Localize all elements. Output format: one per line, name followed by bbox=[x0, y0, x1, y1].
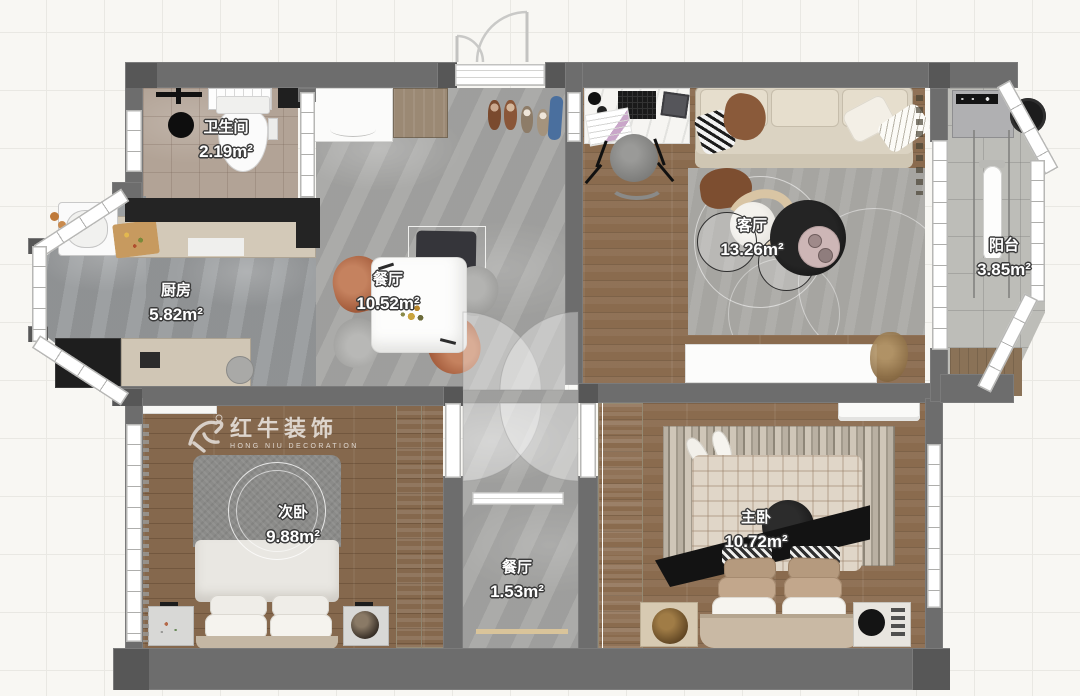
curtain bbox=[142, 424, 149, 642]
wall bbox=[125, 62, 457, 88]
wall bbox=[443, 476, 463, 652]
hallway-door-jamb bbox=[580, 403, 596, 478]
decor-bottles bbox=[891, 608, 905, 640]
nightstand-handle bbox=[160, 602, 178, 606]
wall-dark bbox=[125, 198, 318, 222]
desk-cup bbox=[588, 92, 601, 105]
room-name: 主卧 bbox=[724, 510, 787, 525]
wall-corner bbox=[928, 62, 950, 88]
slipper bbox=[504, 100, 517, 130]
toilet-control bbox=[268, 118, 278, 140]
decor-round-black bbox=[858, 609, 885, 636]
fridge-block bbox=[296, 198, 320, 248]
cutting-board bbox=[112, 219, 160, 258]
wall bbox=[112, 386, 463, 406]
tray-cup bbox=[818, 248, 833, 263]
room-label-second-bedroom: 次卧 9.88m² bbox=[266, 505, 320, 545]
tv-cabinet bbox=[685, 344, 877, 383]
room-area: 5.82m² bbox=[149, 306, 203, 323]
entry-cabinet-curve bbox=[330, 122, 376, 137]
room-name: 厨房 bbox=[149, 283, 203, 298]
room-area: 10.52m² bbox=[356, 295, 419, 312]
watermark: 红牛装饰 HONG NIU DECORATION bbox=[186, 414, 359, 454]
second-bedroom-window bbox=[126, 424, 142, 642]
room-name: 次卧 bbox=[266, 505, 320, 520]
tablet bbox=[660, 91, 689, 118]
shoe-cabinet-wood bbox=[393, 88, 448, 138]
room-area: 13.26m² bbox=[720, 241, 783, 258]
master-bedroom-window bbox=[927, 444, 941, 608]
entry-door-arc-large bbox=[477, 12, 527, 62]
room-area: 10.72m² bbox=[724, 533, 787, 550]
shower-head-icon bbox=[168, 112, 194, 138]
wardrobe bbox=[396, 402, 446, 648]
ac-unit bbox=[838, 400, 920, 421]
entry-door-arc-small bbox=[457, 36, 483, 62]
decor-sphere bbox=[351, 611, 379, 639]
wall-corner bbox=[578, 383, 598, 403]
corner-shelf bbox=[278, 88, 300, 108]
toilet-tank bbox=[216, 96, 270, 114]
hallway-door-jamb bbox=[445, 403, 461, 478]
kitchen-hob bbox=[140, 352, 160, 368]
room-name: 餐厅 bbox=[356, 272, 419, 287]
wardrobe-seam bbox=[421, 402, 422, 648]
bathroom-sliding-door bbox=[300, 92, 315, 198]
room-area: 2.19m² bbox=[199, 143, 253, 160]
side-table-round bbox=[652, 608, 688, 644]
wall bbox=[930, 88, 948, 142]
room-label-balcony: 阳台 3.85m² bbox=[977, 238, 1031, 278]
drying-rack-line bbox=[973, 130, 975, 298]
wall bbox=[578, 476, 598, 652]
room-label-dining: 餐厅 10.52m² bbox=[356, 272, 419, 312]
nightstand-handle bbox=[355, 602, 373, 606]
wall-corner bbox=[545, 62, 565, 88]
bay-window-left bbox=[32, 246, 47, 342]
wall-corner bbox=[912, 648, 950, 690]
hallway-floor bbox=[463, 390, 578, 648]
room-area: 9.88m² bbox=[266, 528, 320, 545]
hallway-sill bbox=[472, 492, 564, 505]
room-name: 卫生间 bbox=[199, 120, 253, 135]
wall-corner bbox=[437, 62, 457, 88]
watermark-brand: 红牛装饰 bbox=[230, 418, 359, 440]
sofa-cushion bbox=[771, 89, 839, 127]
room-label-bathroom: 卫生间 2.19m² bbox=[199, 120, 253, 160]
washer-controls bbox=[956, 94, 998, 104]
tray-cup bbox=[808, 234, 822, 248]
slipper bbox=[521, 106, 533, 133]
kitchen-counter-white-segment bbox=[188, 238, 244, 256]
watermark-subtitle: HONG NIU DECORATION bbox=[230, 443, 359, 450]
balcony-sliding-door bbox=[932, 140, 948, 350]
room-area: 3.85m² bbox=[977, 261, 1031, 278]
wardrobe bbox=[598, 403, 643, 653]
branch-decor bbox=[916, 95, 923, 195]
floor-plan: 红牛装饰 HONG NIU DECORATION 卫生间 2.19m² 厨房 5… bbox=[0, 0, 1080, 696]
room-label-hallway: 餐厅 1.53m² bbox=[490, 560, 544, 600]
entry-door-sill bbox=[455, 64, 545, 86]
wall bbox=[583, 383, 943, 403]
bathroom-window bbox=[126, 110, 142, 172]
wall-corner bbox=[125, 62, 157, 88]
glass-partition bbox=[567, 92, 581, 142]
room-name: 餐厅 bbox=[490, 560, 544, 575]
room-label-kitchen: 厨房 5.82m² bbox=[149, 283, 203, 323]
kitchen-round-sink bbox=[226, 356, 254, 384]
balcony-window-right bbox=[1030, 160, 1045, 302]
room-label-living: 客厅 13.26m² bbox=[720, 218, 783, 258]
wardrobe-seam bbox=[602, 403, 603, 653]
hallway-threshold bbox=[476, 629, 568, 634]
coffee-table-tray bbox=[798, 226, 840, 268]
wall-corner bbox=[113, 648, 149, 690]
wall bbox=[113, 648, 950, 690]
nightstand bbox=[148, 606, 194, 646]
berry-decor bbox=[50, 212, 59, 221]
room-name: 客厅 bbox=[720, 218, 783, 233]
hongniu-bull-logo-icon bbox=[186, 414, 224, 454]
wall bbox=[940, 374, 1014, 403]
room-area: 1.53m² bbox=[490, 583, 544, 600]
bed-headboard bbox=[700, 614, 860, 648]
room-name: 阳台 bbox=[977, 238, 1031, 253]
slipper bbox=[488, 100, 501, 130]
room-label-master-bedroom: 主卧 10.72m² bbox=[724, 510, 787, 550]
office-chair-base bbox=[608, 168, 666, 200]
